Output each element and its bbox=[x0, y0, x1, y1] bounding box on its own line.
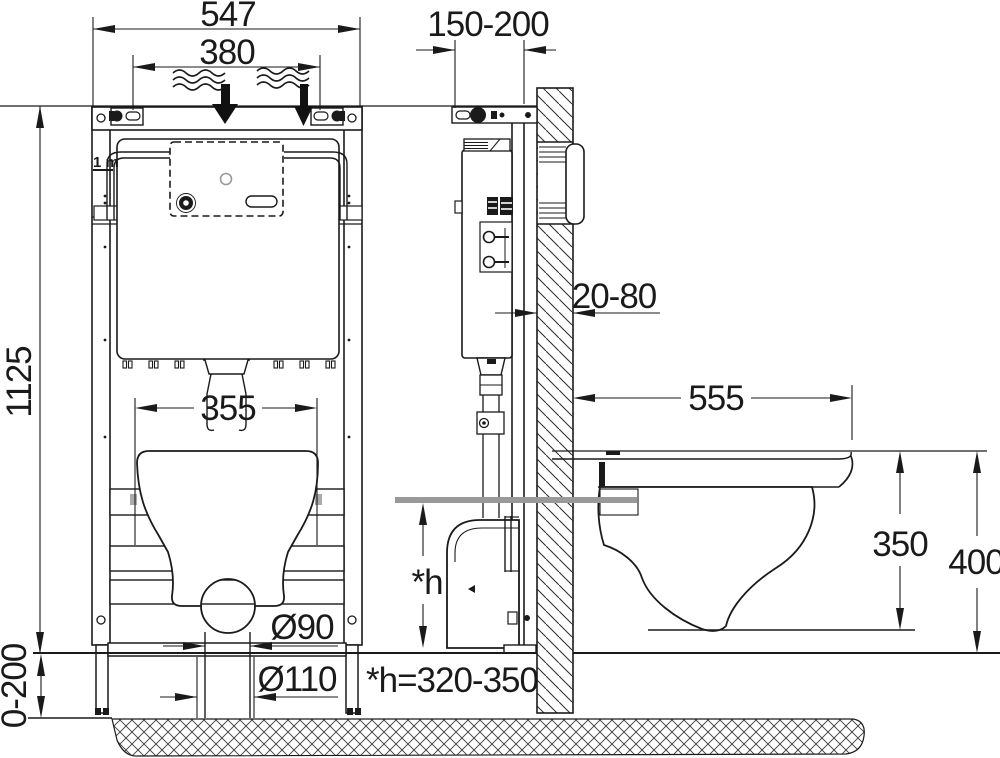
dim-flush-height-value: *h=320-350 bbox=[366, 661, 539, 700]
flush-pipe-highlight bbox=[395, 497, 637, 503]
flush-plate-frame bbox=[566, 144, 584, 224]
dim-bowl-mount-width: 355 bbox=[200, 389, 255, 428]
dim-bowl-depth: 555 bbox=[688, 379, 743, 418]
dim-hanger-spacing: 380 bbox=[199, 33, 255, 72]
cistern-side bbox=[455, 139, 513, 518]
side-view-frame bbox=[447, 107, 537, 653]
dim-rim-to-outlet-drop: 350 bbox=[872, 525, 928, 564]
drawing-canvas: 547 380 150-200 1125 0-200 355 20-80 555… bbox=[0, 0, 1000, 758]
dim-flush-height-symbol: *h bbox=[411, 563, 442, 602]
installation-drawing: 547 380 150-200 1125 0-200 355 20-80 555… bbox=[0, 0, 1000, 758]
meter-mark-label: 1 m bbox=[93, 154, 119, 171]
side-view-wall-section bbox=[537, 88, 584, 713]
floor-hatch bbox=[112, 719, 864, 756]
dim-floor-drain-diameter: Ø110 bbox=[257, 660, 337, 699]
dim-outlet-pipe-diameter: Ø90 bbox=[270, 608, 334, 647]
dim-cladding-thickness: 20-80 bbox=[572, 277, 657, 316]
cistern-front bbox=[107, 139, 347, 430]
side-top-bracket bbox=[452, 107, 537, 123]
dim-frame-height: 1125 bbox=[0, 346, 39, 417]
dim-leg-extension: 0-200 bbox=[0, 643, 34, 728]
waste-elbow bbox=[447, 516, 519, 648]
tank-clips bbox=[123, 361, 335, 368]
dim-installation-depth: 150-200 bbox=[427, 5, 549, 44]
dim-frame-width: 547 bbox=[200, 0, 255, 34]
leg-anchor-bolts bbox=[95, 708, 361, 715]
dim-rim-height: 400 bbox=[948, 543, 1000, 582]
